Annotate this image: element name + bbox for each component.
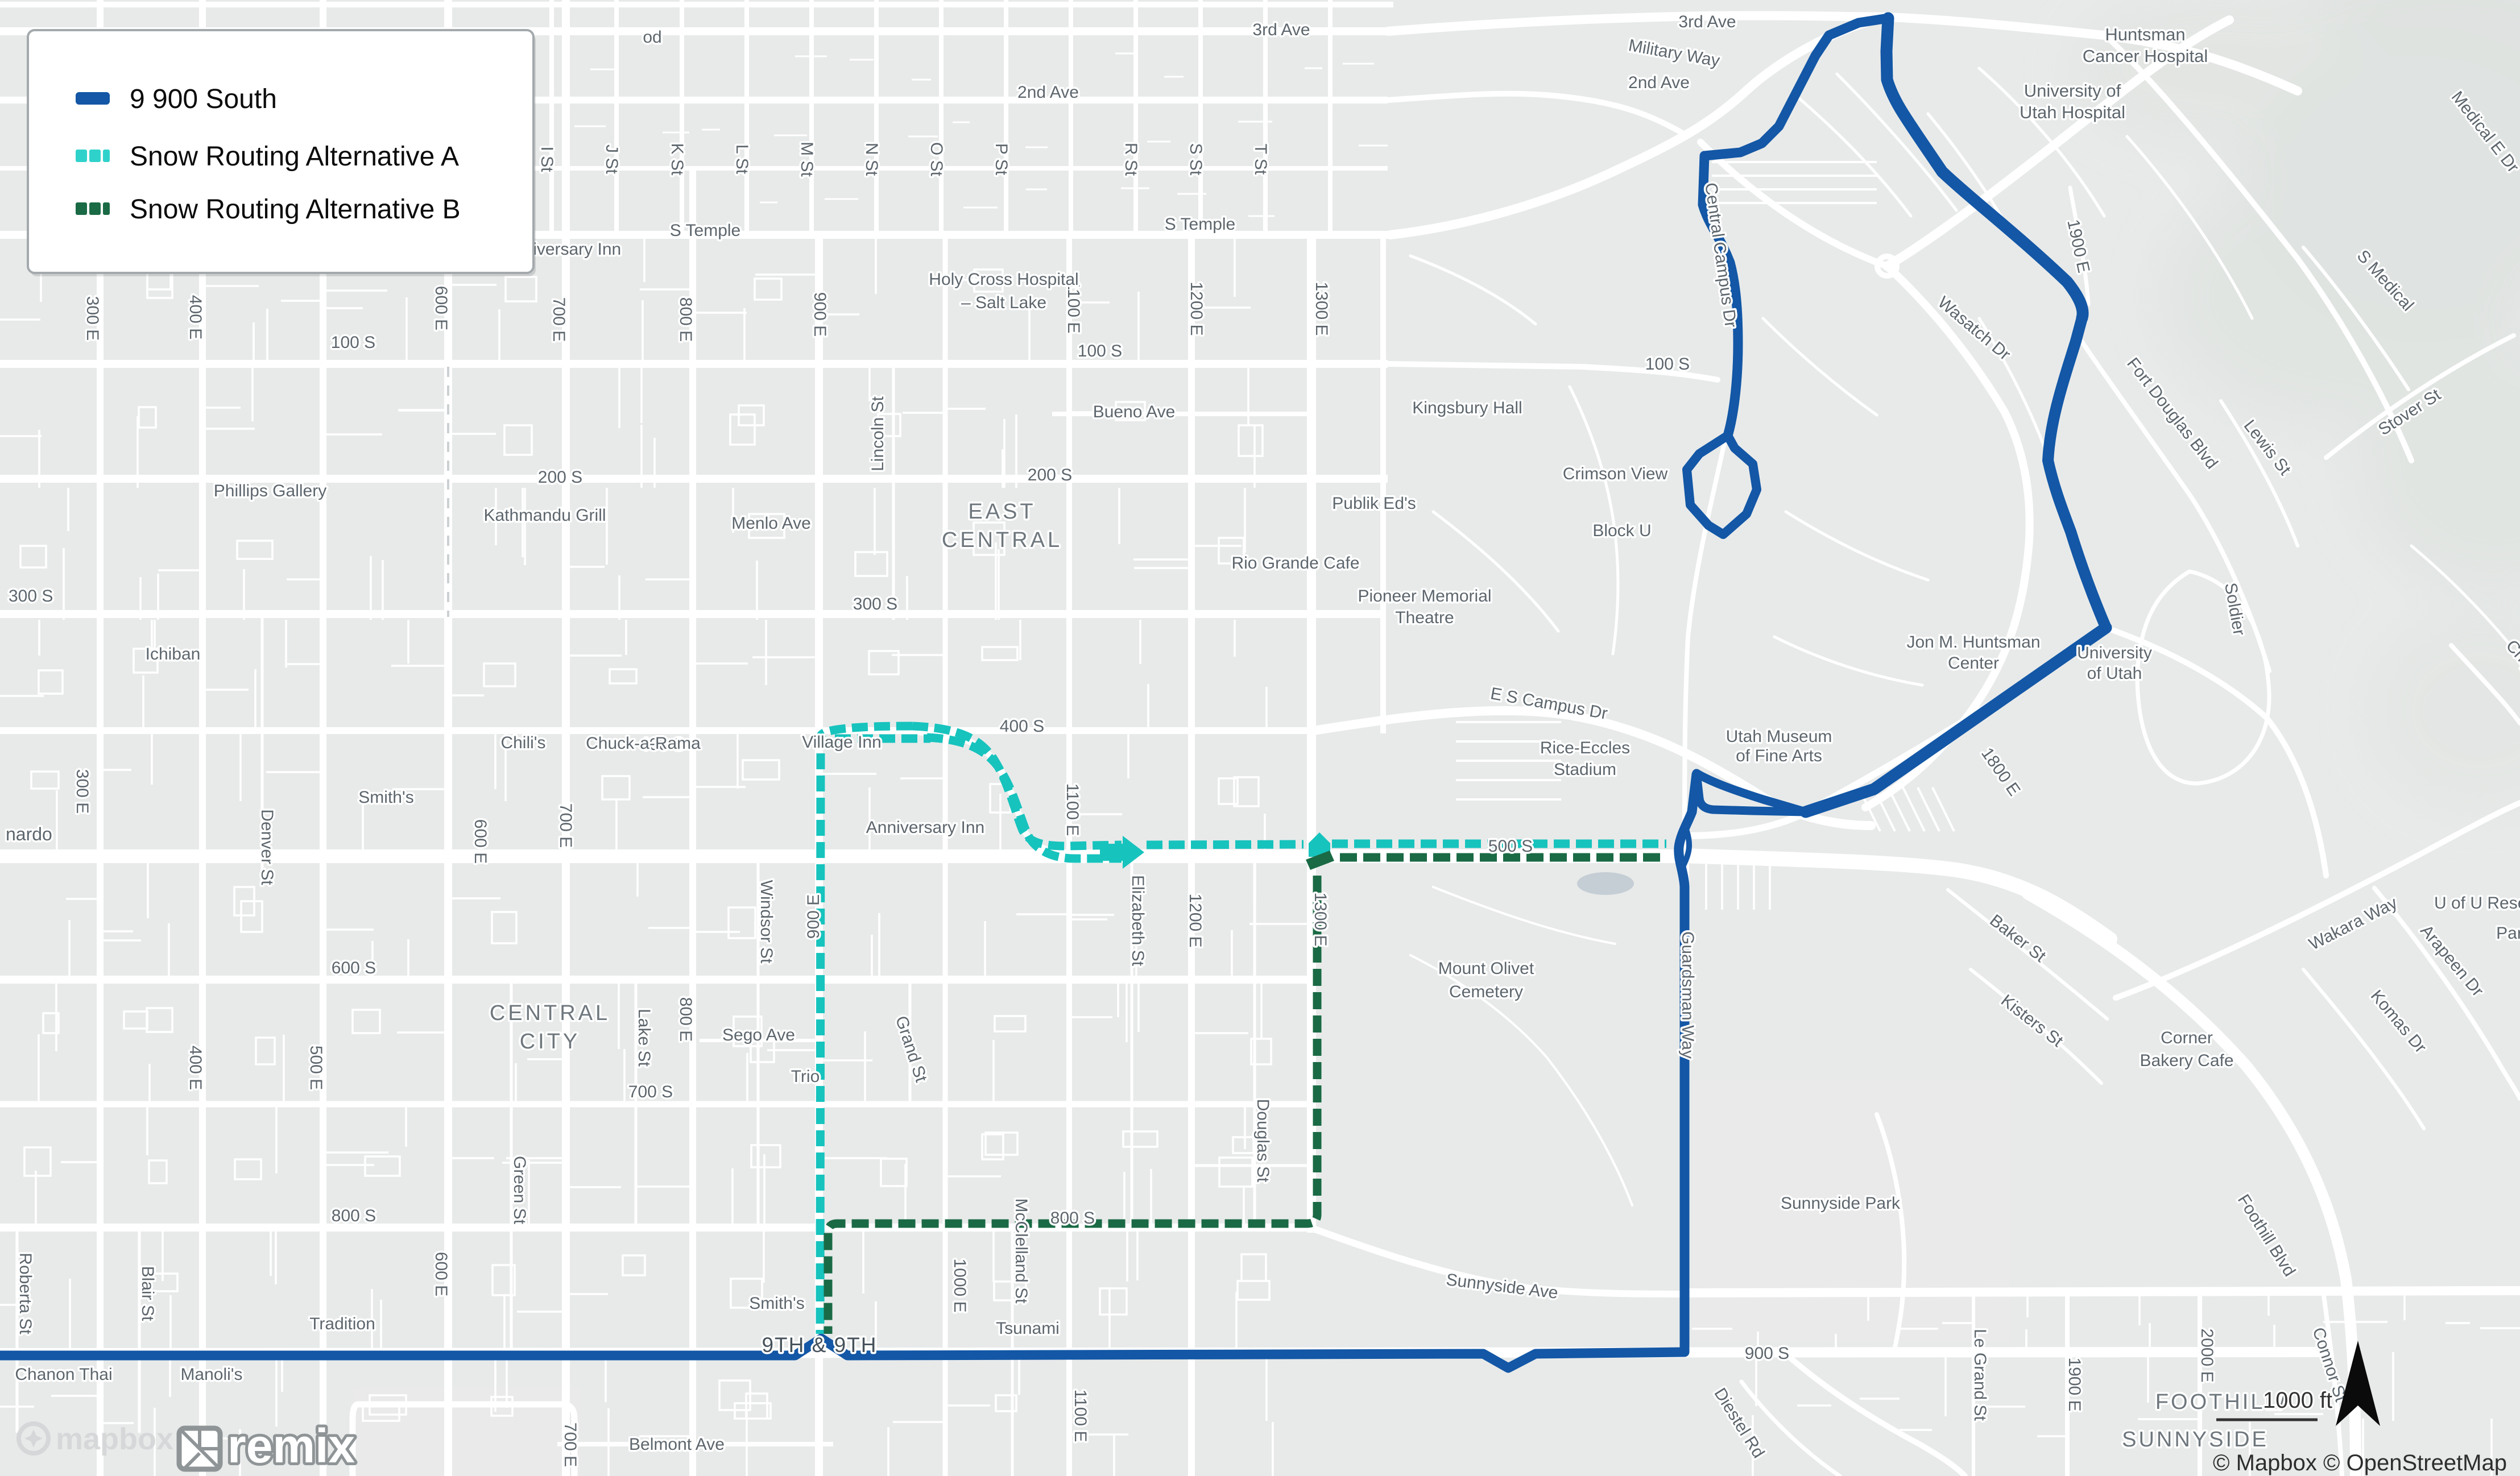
- svg-text:University of: University of: [2024, 81, 2121, 101]
- svg-text:Cemetery: Cemetery: [1449, 982, 1523, 1001]
- svg-text:1000 E: 1000 E: [950, 1258, 969, 1312]
- svg-text:Chili's: Chili's: [500, 733, 545, 752]
- svg-text:EAST: EAST: [968, 500, 1036, 524]
- svg-text:Smith's: Smith's: [358, 788, 413, 807]
- svg-text:900 S: 900 S: [1745, 1344, 1789, 1363]
- svg-text:CENTRAL: CENTRAL: [942, 528, 1062, 552]
- svg-text:Sego Ave: Sego Ave: [722, 1026, 795, 1044]
- svg-text:600 E: 600 E: [432, 1252, 450, 1296]
- svg-text:Smith's: Smith's: [749, 1294, 804, 1313]
- svg-text:2nd Ave: 2nd Ave: [1017, 83, 1079, 102]
- svg-text:1300 E: 1300 E: [1312, 281, 1331, 335]
- svg-text:300 E: 300 E: [73, 769, 92, 814]
- svg-text:R St: R St: [1122, 143, 1140, 176]
- svg-text:800 E: 800 E: [676, 997, 695, 1042]
- svg-text:3rd Ave: 3rd Ave: [1252, 20, 1310, 39]
- svg-text:Bueno Ave: Bueno Ave: [1093, 403, 1176, 421]
- svg-text:500 E: 500 E: [307, 1046, 325, 1090]
- svg-text:300 S: 300 S: [9, 587, 53, 606]
- svg-text:600 S: 600 S: [332, 959, 376, 977]
- svg-text:Menlo Ave: Menlo Ave: [731, 514, 811, 533]
- svg-text:200 S: 200 S: [1028, 466, 1072, 484]
- svg-text:S Temple: S Temple: [670, 221, 741, 240]
- svg-text:P St: P St: [992, 143, 1011, 176]
- svg-text:Center: Center: [1948, 654, 1999, 673]
- svg-text:Huntsman: Huntsman: [2105, 24, 2185, 44]
- svg-text:Manoli's: Manoli's: [180, 1365, 242, 1384]
- svg-text:L St: L St: [733, 144, 751, 175]
- svg-text:N St: N St: [862, 143, 881, 176]
- svg-text:Tsunami: Tsunami: [996, 1319, 1060, 1338]
- svg-text:Denver St: Denver St: [258, 809, 276, 885]
- svg-text:300 E: 300 E: [83, 296, 102, 341]
- svg-text:Village Inn: Village Inn: [802, 733, 882, 752]
- svg-text:Stadium: Stadium: [1554, 760, 1616, 779]
- svg-text:700 E: 700 E: [549, 297, 568, 342]
- svg-text:University: University: [2077, 644, 2152, 662]
- svg-text:2000 E: 2000 E: [2198, 1328, 2216, 1382]
- svg-text:Rice-Eccles: Rice-Eccles: [1540, 739, 1630, 757]
- svg-text:Corner: Corner: [2161, 1029, 2213, 1047]
- svg-text:100 S: 100 S: [1078, 342, 1122, 360]
- svg-text:Blair St: Blair St: [138, 1266, 157, 1321]
- svg-text:900 E: 900 E: [810, 292, 829, 337]
- svg-text:J St: J St: [602, 144, 621, 174]
- svg-text:800 S: 800 S: [1050, 1209, 1095, 1228]
- svg-text:Snow Routing Alternative B: Snow Routing Alternative B: [130, 194, 461, 225]
- svg-text:100 S: 100 S: [331, 333, 375, 352]
- svg-text:Chuck-a-Rama: Chuck-a-Rama: [586, 734, 701, 753]
- svg-text:T St: T St: [1251, 144, 1270, 175]
- svg-text:S Temple: S Temple: [1165, 215, 1236, 234]
- svg-text:CENTRAL: CENTRAL: [490, 1001, 610, 1025]
- svg-text:Mount Olivet: Mount Olivet: [1438, 959, 1534, 978]
- svg-text:Windsor St: Windsor St: [757, 880, 776, 964]
- svg-text:I St: I St: [537, 146, 556, 172]
- svg-text:of Fine Arts: of Fine Arts: [1736, 747, 1822, 765]
- svg-text:1000 ft: 1000 ft: [2263, 1388, 2332, 1413]
- svg-text:Holy Cross Hospital: Holy Cross Hospital: [929, 270, 1078, 289]
- svg-text:K St: K St: [668, 143, 686, 176]
- svg-text:700 E: 700 E: [556, 803, 575, 848]
- svg-text:Jon M. Huntsman: Jon M. Huntsman: [1906, 633, 2040, 652]
- svg-text:mapbox: mapbox: [56, 1422, 173, 1456]
- svg-text:400 S: 400 S: [1000, 717, 1044, 736]
- svg-text:– Salt Lake: – Salt Lake: [961, 293, 1046, 312]
- svg-text:100 S: 100 S: [1645, 355, 1690, 374]
- svg-text:SUNNYSIDE: SUNNYSIDE: [2122, 1428, 2269, 1452]
- svg-text:Pioneer Memorial: Pioneer Memorial: [1358, 587, 1491, 606]
- svg-text:Sunnyside Park: Sunnyside Park: [1781, 1194, 1901, 1213]
- svg-text:Anniversary Inn: Anniversary Inn: [866, 818, 984, 837]
- svg-text:Le Grand St: Le Grand St: [1971, 1329, 1989, 1421]
- svg-text:1100 E: 1100 E: [1071, 1390, 1090, 1442]
- svg-text:Phillips Gallery: Phillips Gallery: [214, 482, 326, 500]
- svg-text:Elizabeth St: Elizabeth St: [1128, 875, 1147, 967]
- svg-text:of Utah: of Utah: [2087, 664, 2142, 683]
- svg-text:M St: M St: [797, 142, 816, 177]
- svg-text:Kathmandu Grill: Kathmandu Grill: [483, 506, 606, 525]
- svg-text:3rd Ave: 3rd Ave: [1678, 13, 1736, 31]
- svg-text:400 E: 400 E: [186, 295, 205, 339]
- svg-text:700 E: 700 E: [561, 1423, 580, 1467]
- svg-text:800 S: 800 S: [332, 1206, 376, 1225]
- svg-text:Lake St: Lake St: [635, 1009, 653, 1067]
- svg-text:Theatre: Theatre: [1395, 608, 1454, 627]
- svg-text:500 S: 500 S: [1488, 837, 1533, 856]
- svg-text:© Mapbox © OpenStreetMap: © Mapbox © OpenStreetMap: [2213, 1450, 2507, 1475]
- svg-text:600 E: 600 E: [471, 819, 490, 864]
- svg-text:Park: Park: [2496, 924, 2520, 943]
- svg-text:od: od: [643, 28, 661, 47]
- svg-text:Cancer Hospital: Cancer Hospital: [2083, 46, 2208, 66]
- svg-text:9 900 South: 9 900 South: [130, 84, 277, 114]
- svg-text:Block U: Block U: [1592, 521, 1651, 540]
- svg-text:CITY: CITY: [520, 1030, 581, 1054]
- svg-text:Snow Routing Alternative A: Snow Routing Alternative A: [130, 142, 459, 172]
- svg-text:300 S: 300 S: [853, 595, 897, 613]
- svg-text:800 E: 800 E: [676, 297, 695, 342]
- svg-text:1200 E: 1200 E: [1186, 893, 1205, 947]
- svg-text:1900 E: 1900 E: [2065, 1357, 2084, 1411]
- svg-text:Green St: Green St: [510, 1156, 529, 1225]
- svg-text:400 E: 400 E: [186, 1046, 205, 1090]
- svg-text:Belmont Ave: Belmont Ave: [629, 1435, 725, 1454]
- svg-text:700 S: 700 S: [628, 1083, 673, 1101]
- svg-text:1100 E: 1100 E: [1063, 783, 1082, 836]
- svg-text:Tradition: Tradition: [309, 1315, 375, 1333]
- svg-text:1200 E: 1200 E: [1187, 281, 1206, 335]
- svg-text:Douglas St: Douglas St: [1253, 1099, 1272, 1183]
- svg-text:900 E: 900 E: [804, 894, 823, 939]
- svg-text:Guardsman Way: Guardsman Way: [1678, 931, 1697, 1059]
- svg-text:S St: S St: [1186, 143, 1205, 176]
- svg-text:Roberta St: Roberta St: [16, 1253, 35, 1334]
- svg-text:Trio: Trio: [791, 1067, 820, 1086]
- svg-text:O St: O St: [927, 142, 946, 177]
- svg-text:Ichiban: Ichiban: [146, 645, 201, 664]
- svg-text:McClelland St: McClelland St: [1012, 1198, 1031, 1304]
- svg-text:Utah Hospital: Utah Hospital: [2020, 102, 2125, 122]
- svg-text:200 S: 200 S: [538, 468, 582, 487]
- svg-text:9TH & 9TH: 9TH & 9TH: [762, 1333, 877, 1357]
- svg-text:U of U Resea: U of U Resea: [2434, 894, 2520, 913]
- svg-text:Publik Ed's: Publik Ed's: [1332, 494, 1416, 513]
- svg-text:Lincoln St: Lincoln St: [868, 396, 887, 471]
- svg-text:Chanon Thai: Chanon Thai: [15, 1365, 112, 1384]
- svg-text:remix: remix: [227, 1419, 355, 1473]
- svg-text:Rio Grande Cafe: Rio Grande Cafe: [1231, 554, 1359, 573]
- svg-text:Bakery Cafe: Bakery Cafe: [2140, 1051, 2233, 1070]
- svg-text:Crimson View: Crimson View: [1563, 465, 1668, 483]
- svg-text:1300 E: 1300 E: [1311, 892, 1330, 946]
- svg-text:600 E: 600 E: [432, 286, 450, 330]
- svg-text:Kingsbury Hall: Kingsbury Hall: [1412, 399, 1522, 417]
- svg-text:2nd Ave: 2nd Ave: [1628, 73, 1690, 92]
- svg-text:nardo: nardo: [6, 824, 52, 844]
- svg-text:Utah Museum: Utah Museum: [1726, 727, 1832, 746]
